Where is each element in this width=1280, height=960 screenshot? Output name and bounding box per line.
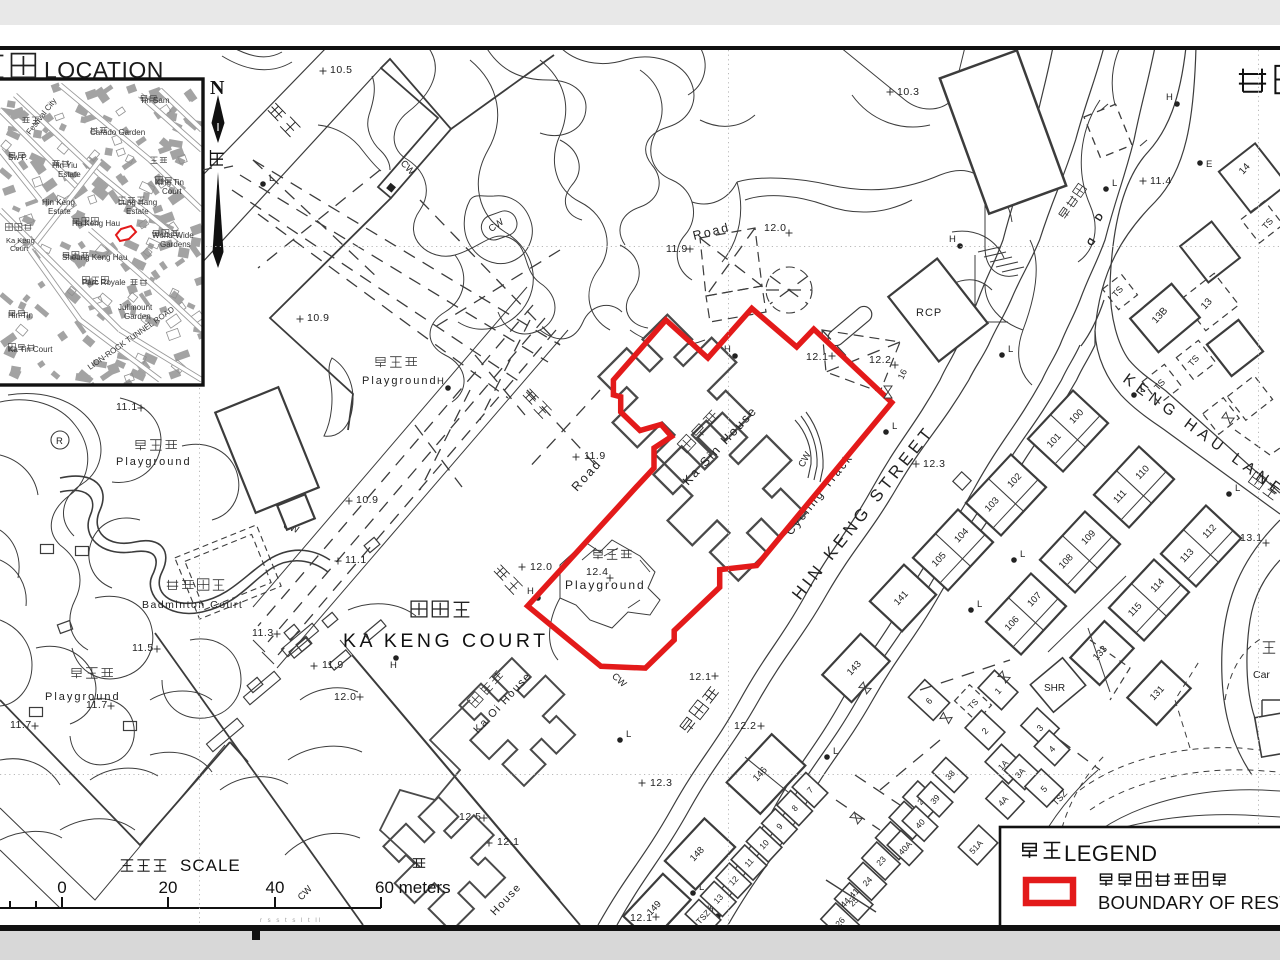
svg-text:E: E — [1206, 159, 1212, 170]
svg-text:11.5: 11.5 — [132, 642, 154, 654]
svg-text:Playground: Playground — [116, 456, 192, 468]
svg-text:11.1: 11.1 — [116, 401, 138, 413]
svg-text:12.1: 12.1 — [630, 912, 652, 924]
svg-text:12.1: 12.1 — [689, 671, 711, 683]
svg-text:10.9: 10.9 — [356, 494, 378, 506]
svg-text:LOCATION: LOCATION — [44, 57, 164, 83]
svg-text:13.1: 13.1 — [1240, 532, 1262, 544]
svg-text:King Tin: King Tin — [155, 178, 184, 187]
svg-text:L: L — [1112, 178, 1117, 189]
svg-text:Estate: Estate — [58, 170, 81, 179]
svg-text:L: L — [1008, 344, 1013, 355]
svg-text:H: H — [1166, 92, 1173, 103]
svg-text:60 meters: 60 meters — [375, 878, 451, 897]
svg-text:10.5: 10.5 — [330, 64, 352, 76]
svg-text:SHR: SHR — [1044, 683, 1065, 694]
svg-text:r s s t: r s s t s l t ll — [260, 918, 322, 924]
svg-text:Parc Royale: Parc Royale — [82, 278, 126, 287]
svg-text:L: L — [1140, 384, 1145, 395]
svg-text:LEGEND: LEGEND — [1064, 841, 1157, 866]
svg-text:L: L — [626, 729, 631, 740]
svg-text:SCALE: SCALE — [180, 856, 241, 875]
svg-text:12.0: 12.0 — [530, 561, 552, 573]
svg-text:12.3: 12.3 — [923, 458, 945, 470]
svg-text:Estate: Estate — [126, 207, 149, 216]
svg-text:Car: Car — [1253, 669, 1270, 681]
svg-text:Julimount: Julimount — [118, 303, 153, 312]
svg-text:Court: Court — [10, 244, 29, 253]
svg-text:12.1: 12.1 — [497, 836, 519, 848]
svg-text:Hin Yiu: Hin Yiu — [52, 161, 77, 170]
svg-text:KA KENG COURT: KA KENG COURT — [343, 630, 549, 652]
svg-text:Sheung Keng Hau: Sheung Keng Hau — [62, 253, 127, 262]
svg-text:Ha Keng Hau: Ha Keng Hau — [72, 219, 120, 228]
svg-text:H: H — [527, 586, 534, 597]
svg-text:40: 40 — [266, 878, 285, 897]
svg-text:R: R — [56, 436, 63, 447]
svg-text:10.9: 10.9 — [307, 312, 329, 324]
svg-text:World-Wide: World-Wide — [152, 231, 194, 240]
svg-text:Playground: Playground — [565, 578, 646, 592]
svg-text:Garden: Garden — [124, 312, 151, 321]
svg-text:11.9: 11.9 — [584, 450, 606, 462]
svg-text:12.0: 12.0 — [334, 691, 356, 703]
svg-text:L: L — [1020, 549, 1025, 560]
svg-text:H: H — [949, 234, 956, 245]
svg-text:Lung Hang: Lung Hang — [118, 198, 157, 207]
svg-text:L: L — [1235, 483, 1240, 494]
svg-text:11.4: 11.4 — [1150, 175, 1172, 187]
svg-text:L: L — [977, 599, 982, 610]
svg-text:12.3: 12.3 — [650, 777, 672, 789]
svg-text:BOUNDARY OF RESTRI: BOUNDARY OF RESTRI — [1098, 892, 1280, 913]
svg-text:12.2: 12.2 — [869, 354, 891, 366]
svg-text:11.1: 11.1 — [345, 554, 367, 566]
svg-text:Playground: Playground — [362, 375, 438, 387]
svg-text:Hin Keng: Hin Keng — [42, 198, 75, 207]
svg-text:Estate: Estate — [48, 207, 71, 216]
svg-text:12.2: 12.2 — [734, 720, 756, 732]
svg-text:12.0: 12.0 — [764, 222, 786, 234]
svg-text:12.4: 12.4 — [586, 566, 608, 578]
svg-text:N: N — [210, 77, 225, 99]
svg-text:L: L — [892, 421, 897, 432]
svg-text:L: L — [833, 746, 838, 757]
svg-text:Ka Tin Court: Ka Tin Court — [8, 345, 53, 354]
svg-text:11.3: 11.3 — [252, 627, 274, 639]
svg-text:0: 0 — [57, 878, 66, 897]
svg-text:Playground: Playground — [45, 691, 121, 703]
svg-text:20: 20 — [159, 878, 178, 897]
svg-text:Carado Garden: Carado Garden — [90, 128, 145, 137]
svg-text:Sw P.: Sw P. — [8, 153, 28, 162]
svg-text:H: H — [390, 660, 397, 671]
svg-text:Hin Tin: Hin Tin — [8, 311, 33, 320]
svg-text:Tin Sam: Tin Sam — [140, 96, 170, 105]
svg-text:RCP: RCP — [916, 307, 942, 319]
svg-text:Badminton Court: Badminton Court — [142, 599, 243, 611]
svg-text:Court: Court — [162, 187, 182, 196]
svg-text:Gardens: Gardens — [160, 240, 191, 249]
